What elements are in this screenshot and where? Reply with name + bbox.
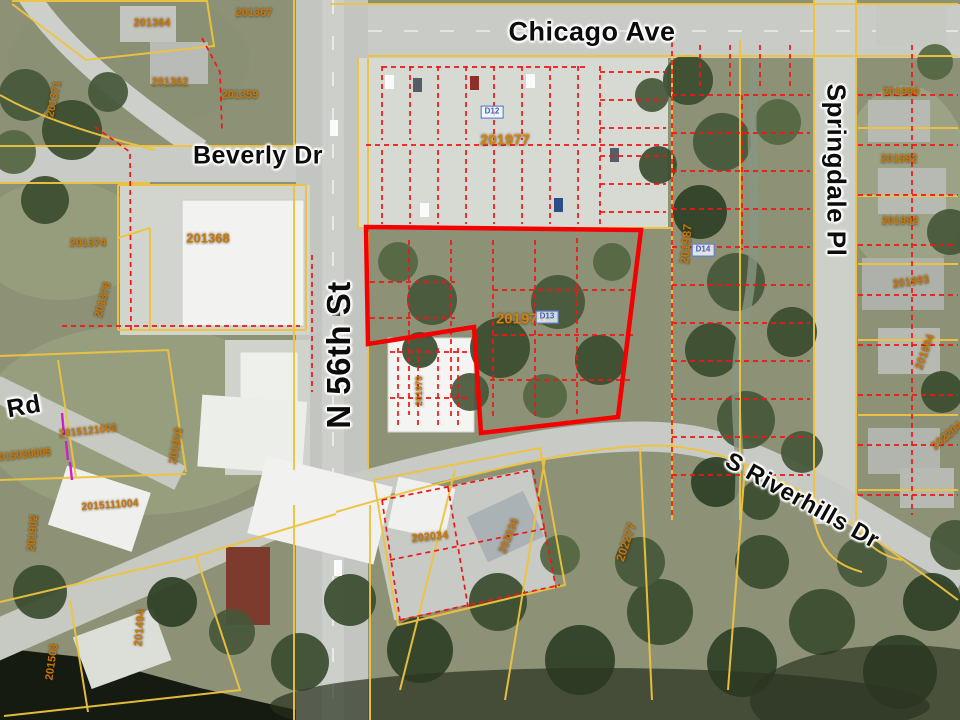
map-marker-d13[interactable]: D13 <box>536 311 559 324</box>
parcel-label: 201992 <box>881 153 918 165</box>
street-label-springdale-pl: Springdale Pl <box>821 84 852 257</box>
street-label-rd: Rd <box>5 390 44 425</box>
street-label-n-56th-st: N 56th St <box>320 281 358 429</box>
map-marker-d14[interactable]: D14 <box>692 244 715 257</box>
aerial-parcel-map[interactable]: Chicago Ave Beverly Dr N 56th St Springd… <box>0 0 960 720</box>
parcel-label: 201374 <box>70 237 107 249</box>
parcel-label: 201979 <box>414 376 424 406</box>
parcel-label: 201364 <box>134 17 171 29</box>
parcel-label: 201977 <box>480 132 530 149</box>
parcel-label: 201367 <box>236 7 273 19</box>
parcel-label: 201362 <box>152 76 189 88</box>
street-label-beverly-dr: Beverly Dr <box>193 142 323 171</box>
map-marker-d12[interactable]: D12 <box>481 106 504 119</box>
parcel-label: 201359 <box>222 89 259 101</box>
parcel-label: 201368 <box>186 231 229 246</box>
parcel-label: 201990 <box>883 86 920 98</box>
parcel-label: 201992 <box>882 215 919 227</box>
street-label-chicago-ave: Chicago Ave <box>508 17 675 48</box>
